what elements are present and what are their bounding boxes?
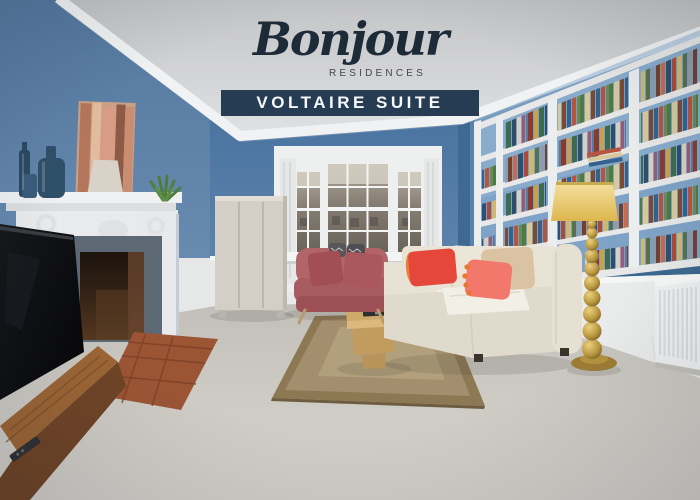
hero-photo: Bonjour RESIDENCES VOLTAIRE SUITE (0, 0, 700, 500)
suite-banner-label: VOLTAIRE SUITE (256, 93, 443, 113)
brand-tagline: RESIDENCES (329, 68, 426, 79)
brand-name: Bonjour (0, 14, 700, 65)
suite-banner: VOLTAIRE SUITE (221, 90, 479, 116)
